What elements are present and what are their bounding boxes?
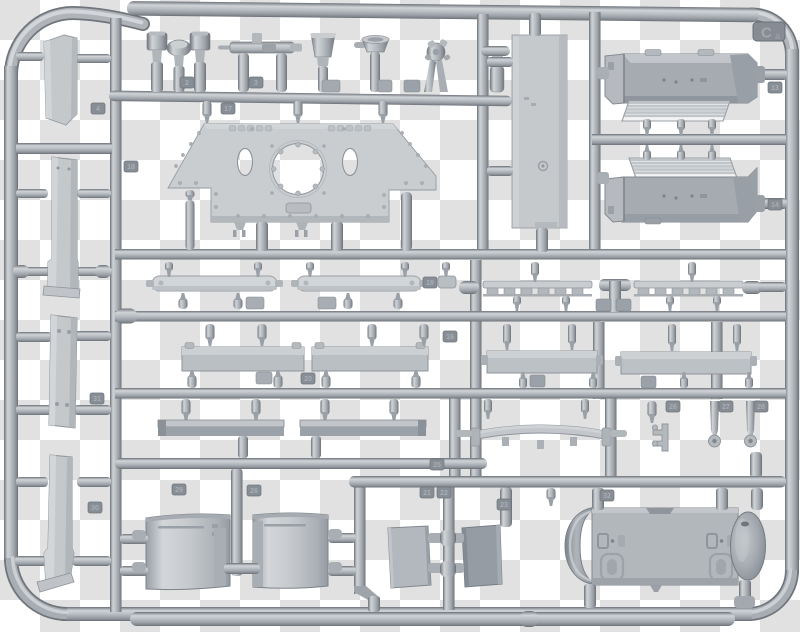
svg-text:20: 20: [304, 376, 312, 383]
svg-text:28: 28: [757, 404, 765, 411]
svg-text:25: 25: [433, 462, 441, 469]
svg-text:26: 26: [250, 488, 258, 495]
svg-text:31: 31: [93, 396, 101, 403]
svg-text:C: C: [761, 25, 772, 42]
svg-text:14: 14: [771, 202, 779, 209]
svg-text:32: 32: [603, 493, 611, 500]
svg-text:17: 17: [224, 106, 232, 113]
svg-text:3: 3: [254, 80, 258, 87]
svg-text:30: 30: [91, 505, 99, 512]
svg-text:16: 16: [446, 334, 454, 341]
svg-text:19: 19: [426, 280, 434, 287]
svg-text:26: 26: [669, 404, 677, 411]
svg-text:29: 29: [175, 487, 183, 494]
svg-text:4: 4: [96, 106, 100, 113]
svg-text:23: 23: [500, 502, 508, 509]
svg-text:27: 27: [722, 404, 730, 411]
svg-text:18: 18: [127, 164, 135, 171]
svg-text:22: 22: [440, 490, 448, 497]
svg-text:21: 21: [423, 490, 431, 497]
svg-text:2: 2: [185, 80, 189, 87]
svg-text:13: 13: [771, 85, 779, 92]
